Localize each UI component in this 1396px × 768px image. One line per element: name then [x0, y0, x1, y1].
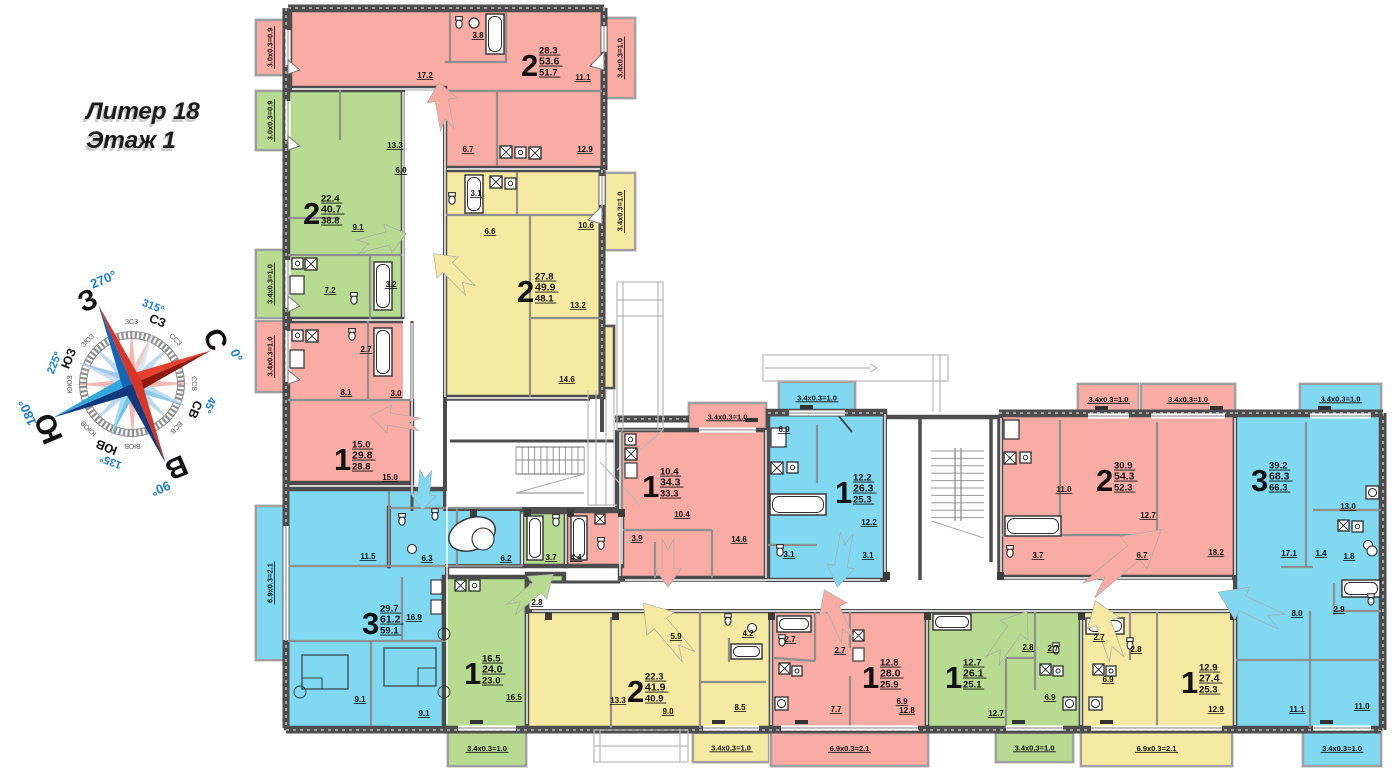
- svg-text:10.6: 10.6: [578, 221, 594, 230]
- svg-text:13.0: 13.0: [1340, 502, 1356, 511]
- svg-text:3.2: 3.2: [385, 280, 397, 289]
- svg-text:15.0: 15.0: [382, 473, 398, 482]
- svg-text:13.3: 13.3: [387, 141, 403, 150]
- svg-text:3.4x0.3=1.0: 3.4x0.3=1.0: [1015, 743, 1055, 752]
- svg-text:ССВ: ССВ: [190, 376, 197, 391]
- svg-text:9.0: 9.0: [662, 707, 674, 716]
- svg-text:9.1: 9.1: [352, 223, 364, 232]
- svg-text:4.4: 4.4: [570, 553, 582, 562]
- svg-text:14.6: 14.6: [731, 535, 747, 544]
- svg-text:12.9: 12.9: [1208, 705, 1224, 714]
- svg-text:2.7: 2.7: [360, 345, 372, 354]
- svg-text:12.9: 12.9: [577, 145, 593, 154]
- svg-text:6.9x0.3=2.1: 6.9x0.3=2.1: [266, 563, 275, 603]
- svg-text:3.1: 3.1: [862, 551, 874, 560]
- svg-text:1.8: 1.8: [1343, 552, 1355, 561]
- svg-text:3.8: 3.8: [472, 31, 484, 40]
- svg-text:12.7: 12.7: [988, 709, 1004, 718]
- svg-text:3.4x0.3=1.0: 3.4x0.3=1.0: [616, 192, 625, 232]
- svg-text:16.5: 16.5: [506, 693, 522, 702]
- svg-text:3.4x0.3=1.0: 3.4x0.3=1.0: [1089, 395, 1129, 404]
- svg-text:6.6: 6.6: [484, 227, 496, 236]
- svg-text:11.1: 11.1: [1289, 705, 1305, 714]
- svg-text:2.9: 2.9: [1333, 605, 1345, 614]
- svg-text:3: 3: [1251, 463, 1268, 498]
- svg-text:3.1: 3.1: [470, 189, 482, 198]
- svg-text:6.7: 6.7: [462, 145, 474, 154]
- svg-text:Литер 18: Литер 18: [84, 98, 200, 125]
- svg-text:1: 1: [945, 660, 962, 695]
- svg-text:6.2: 6.2: [500, 554, 512, 563]
- svg-text:1: 1: [835, 475, 852, 510]
- svg-text:2: 2: [517, 274, 534, 309]
- svg-text:2: 2: [521, 48, 538, 83]
- svg-text:6.9x0.3=2.1: 6.9x0.3=2.1: [1137, 744, 1177, 753]
- svg-text:3.4x0.3=1.0: 3.4x0.3=1.0: [266, 337, 275, 377]
- svg-text:12.2: 12.2: [861, 518, 877, 527]
- svg-text:2.8: 2.8: [1130, 645, 1142, 654]
- svg-text:2: 2: [303, 196, 320, 231]
- svg-text:12.8: 12.8: [899, 706, 915, 715]
- svg-text:7.7: 7.7: [830, 705, 842, 714]
- svg-text:3.4x0.3=1.0: 3.4x0.3=1.0: [708, 412, 748, 421]
- svg-text:6.3: 6.3: [421, 554, 433, 563]
- svg-text:ЮЮЗ: ЮЮЗ: [67, 375, 74, 393]
- svg-text:3.1: 3.1: [783, 550, 795, 559]
- svg-text:13.2: 13.2: [570, 301, 586, 310]
- svg-text:3.4x0.3=1.0: 3.4x0.3=1.0: [711, 743, 751, 752]
- svg-text:5.9: 5.9: [670, 632, 682, 641]
- svg-text:6.9: 6.9: [778, 425, 790, 434]
- svg-text:3.0x0.3=0.9: 3.0x0.3=0.9: [266, 28, 275, 68]
- svg-text:9.1: 9.1: [418, 709, 430, 718]
- svg-text:4.2: 4.2: [742, 629, 754, 638]
- svg-text:3.4x0.3=1.0: 3.4x0.3=1.0: [1321, 394, 1361, 403]
- svg-text:17.1: 17.1: [1281, 549, 1297, 558]
- svg-text:3.4x0.3=1.0: 3.4x0.3=1.0: [266, 264, 275, 304]
- svg-text:3.7: 3.7: [545, 553, 557, 562]
- svg-text:3.4x0.3=1.0: 3.4x0.3=1.0: [467, 744, 507, 753]
- svg-text:3.9: 3.9: [631, 534, 643, 543]
- svg-text:6.9: 6.9: [1044, 693, 1056, 702]
- svg-text:8.0: 8.0: [1291, 609, 1303, 618]
- svg-text:1: 1: [334, 442, 351, 477]
- svg-text:1: 1: [464, 656, 481, 691]
- svg-text:9.1: 9.1: [354, 695, 366, 704]
- svg-text:3.4x0.3=1.0: 3.4x0.3=1.0: [797, 393, 837, 402]
- svg-text:2: 2: [627, 674, 644, 709]
- svg-text:11.1: 11.1: [575, 73, 591, 82]
- svg-text:1: 1: [1181, 665, 1198, 700]
- svg-text:6.9: 6.9: [896, 697, 908, 706]
- svg-text:3.4x0.3=1.0: 3.4x0.3=1.0: [616, 38, 625, 78]
- svg-text:11.5: 11.5: [360, 552, 376, 561]
- svg-text:8.5: 8.5: [734, 703, 746, 712]
- svg-text:3.4x0.3=1.0: 3.4x0.3=1.0: [1322, 744, 1362, 753]
- svg-text:7.2: 7.2: [324, 286, 336, 295]
- svg-text:12.7: 12.7: [1140, 511, 1156, 520]
- svg-text:2.7: 2.7: [1047, 644, 1059, 653]
- svg-text:14.6: 14.6: [559, 375, 575, 384]
- svg-text:3: 3: [362, 606, 379, 641]
- svg-text:3.4x0.3=1.0: 3.4x0.3=1.0: [1168, 395, 1208, 404]
- svg-text:3.0x0.3=0.9: 3.0x0.3=0.9: [266, 101, 275, 141]
- svg-text:6.7: 6.7: [1136, 551, 1148, 560]
- svg-text:3.0: 3.0: [390, 389, 402, 398]
- svg-text:17.2: 17.2: [417, 71, 433, 80]
- svg-text:2.7: 2.7: [784, 635, 796, 644]
- svg-text:11.0: 11.0: [1354, 702, 1370, 711]
- svg-text:ЗСЗ: ЗСЗ: [125, 319, 138, 326]
- svg-text:2.7: 2.7: [834, 646, 846, 655]
- svg-text:2.8: 2.8: [531, 598, 543, 607]
- svg-text:1: 1: [862, 660, 879, 695]
- svg-text:1.4: 1.4: [1315, 549, 1327, 558]
- svg-text:8.1: 8.1: [340, 388, 352, 397]
- svg-text:2.7: 2.7: [1093, 633, 1105, 642]
- svg-text:1: 1: [642, 469, 659, 504]
- svg-text:6.9x0.3=2.1: 6.9x0.3=2.1: [830, 744, 870, 753]
- svg-text:Этаж 1: Этаж 1: [86, 127, 176, 154]
- svg-text:10.4: 10.4: [674, 510, 690, 519]
- svg-text:6.0: 6.0: [395, 166, 407, 175]
- svg-text:16.9: 16.9: [406, 613, 422, 622]
- svg-text:3.7: 3.7: [1032, 551, 1044, 560]
- svg-text:13.3: 13.3: [610, 696, 626, 705]
- svg-text:11.0: 11.0: [1056, 485, 1072, 494]
- svg-text:18.2: 18.2: [1208, 548, 1224, 557]
- svg-text:6.9: 6.9: [1102, 675, 1114, 684]
- svg-text:ВЮВ: ВЮВ: [124, 442, 141, 449]
- svg-text:2: 2: [1096, 463, 1113, 498]
- svg-text:2.8: 2.8: [1022, 643, 1034, 652]
